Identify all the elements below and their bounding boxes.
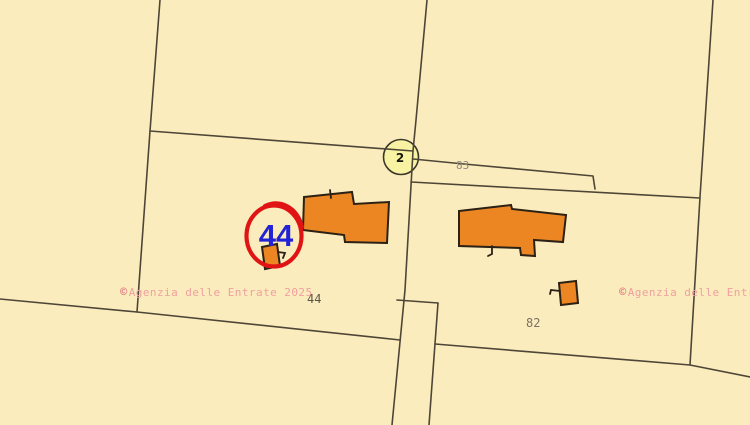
road-edge-lower bbox=[411, 182, 700, 198]
lane-edge-right bbox=[429, 303, 438, 425]
watermark-left-text: Agenzia delle Entrate 2025 bbox=[129, 286, 313, 299]
parcel-label-83: 83 bbox=[456, 159, 469, 172]
boundary-line-center-vertical bbox=[392, 0, 427, 425]
road-edge-upper bbox=[413, 159, 595, 189]
watermark-left: ©Agenzia delle Entrate 2025 bbox=[120, 285, 313, 299]
copyright-icon: © bbox=[120, 285, 128, 299]
boundary-line-southeast bbox=[435, 344, 750, 377]
annex-right-tie-mark bbox=[550, 290, 560, 294]
road-number-text: 2 bbox=[396, 151, 404, 165]
copyright-icon: © bbox=[619, 285, 627, 299]
building-main-right bbox=[459, 205, 566, 256]
building-annex-right bbox=[559, 281, 578, 305]
boundary-line-southwest bbox=[0, 299, 400, 340]
building-main-left bbox=[303, 192, 389, 243]
boundary-line-west bbox=[137, 0, 160, 312]
watermark-right-text: Agenzia delle Entra bbox=[628, 286, 750, 299]
parcel-label-82: 82 bbox=[526, 316, 540, 330]
cadastral-map-graphics: 83 44 82 2 44 bbox=[0, 0, 750, 425]
cadastral-map-canvas[interactable]: 83 44 82 2 44 ©Agenzia delle Entrate 202… bbox=[0, 0, 750, 425]
boundary-line-north bbox=[150, 131, 413, 151]
watermark-right: ©Agenzia delle Entra bbox=[619, 285, 750, 299]
building-tie-mark-left bbox=[330, 190, 331, 198]
highlighted-parcel-number: 44 bbox=[259, 218, 294, 253]
boundary-line-east bbox=[690, 0, 713, 365]
